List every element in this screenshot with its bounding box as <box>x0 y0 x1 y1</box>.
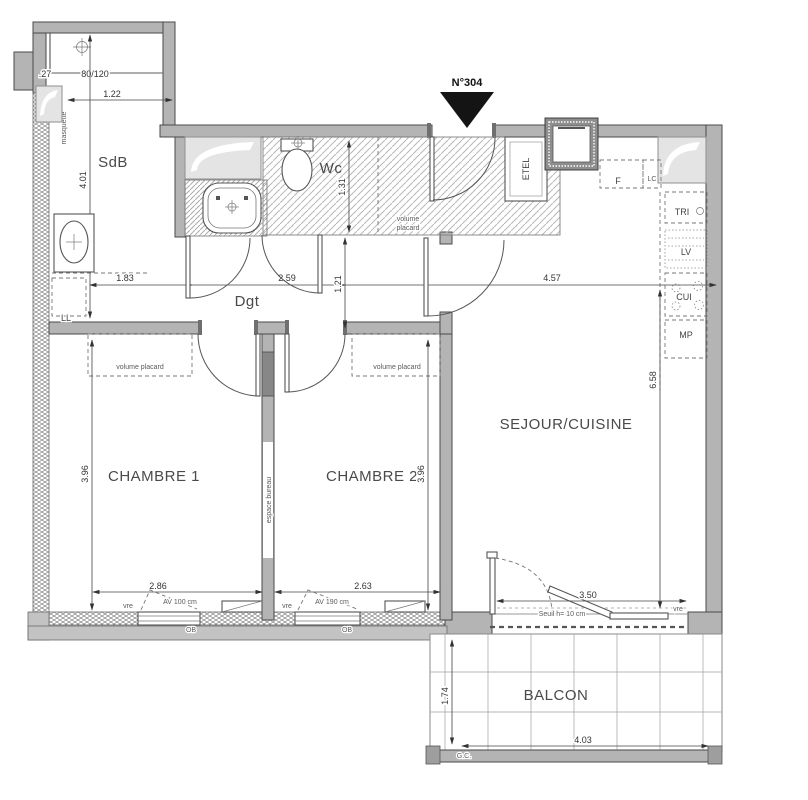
wall-right <box>706 125 722 635</box>
corridor: 1.83 2.59 4.57 1.21 Dgt <box>90 235 716 328</box>
wall-sdb-wc <box>175 137 185 237</box>
burner-icon <box>672 302 680 310</box>
dim-chambre2-depth: 3.96 <box>416 465 426 483</box>
dim-chambre1-width: 2.86 <box>149 581 167 591</box>
label-seuil: Seuil h= 10 cm <box>539 611 586 618</box>
unit-number: N°304 <box>452 77 484 89</box>
dim-annex-window: 80/120 <box>81 69 109 79</box>
balcony: BALCON 1.74 4.03 G.C. <box>426 634 722 764</box>
wc-door-leaf <box>318 235 322 293</box>
dim-annex-width: 1.22 <box>103 89 121 99</box>
dim-chambre2-width: 2.63 <box>354 581 372 591</box>
label-cui: CUI <box>676 292 692 302</box>
dim-sdb-depth: 4.01 <box>78 171 88 189</box>
tri-circle-icon <box>697 208 704 215</box>
bathtub <box>203 183 261 233</box>
dim-chambre1-depth: 3.96 <box>80 465 90 483</box>
room-chambre1: volume placard CHAMBRE 1 3.96 2.86 <box>80 334 262 610</box>
bay-door-leaf <box>490 556 495 614</box>
label-mp: MP <box>679 330 693 340</box>
room-label-sdb: SdB <box>98 154 128 171</box>
dim-corridor-1: 1.83 <box>116 273 134 283</box>
label-ob-ch2: OB <box>342 627 352 634</box>
room-label-balcon: BALCON <box>524 687 589 704</box>
entrance-arrow-icon <box>440 92 494 128</box>
label-etel: ETEL <box>521 158 531 181</box>
room-label-chambre2: CHAMBRE 2 <box>326 468 418 485</box>
floor-plan: .27 80/120 1.22 masquette SdB 4.01 LL <box>0 0 808 800</box>
dim-balcon-width: 4.03 <box>574 735 592 745</box>
duct-box <box>545 118 598 170</box>
label-volume-placard-ch1: volume placard <box>116 364 164 371</box>
label-vre-ch1: vre <box>123 603 133 610</box>
dim-wc-depth: 1.31 <box>337 178 347 196</box>
label-volume-placard-ch2: volume placard <box>373 364 421 371</box>
chambre1-door-leaf <box>256 334 260 396</box>
room-label-wc: Wc <box>320 160 343 177</box>
walls <box>14 22 722 640</box>
burner-icon <box>695 301 704 310</box>
sejour-door-swing <box>428 240 504 316</box>
dim-corridor-4: 4.57 <box>543 273 561 283</box>
label-ll: LL <box>61 313 71 323</box>
label-lv: LV <box>681 247 691 257</box>
wc-door-swing <box>262 235 320 293</box>
entry-door-leaf <box>430 137 434 201</box>
label-av-ch2: AV 190 cm <box>315 599 349 606</box>
label-lc: LC <box>648 176 657 183</box>
sejour-door-leaf <box>424 238 428 316</box>
dim-annex-wall: .27 <box>39 69 52 79</box>
sdb-door-leaf <box>186 236 190 298</box>
label-placard: placard <box>397 225 420 232</box>
room-label-chambre1: CHAMBRE 1 <box>108 468 200 485</box>
insulated-wall-left <box>33 93 49 620</box>
chambre2-door-leaf <box>285 334 289 392</box>
balcony-parapet <box>436 750 710 762</box>
dim-corridor-3: 1.21 <box>333 275 343 293</box>
dim-kitchen-depth: 6.58 <box>648 371 658 389</box>
bay-fixed-panel <box>610 613 668 619</box>
washbasin <box>54 214 94 272</box>
label-f: F <box>615 176 621 186</box>
wall-chambre2-sejour <box>440 334 452 620</box>
bay-door: 3.50 Seuil h= 10 cm vre <box>487 552 688 627</box>
kitchen: F LC TRI LV CUI MP 6.58 <box>600 137 707 608</box>
sdb-door-swing <box>190 238 250 298</box>
room-label-dgt: Dgt <box>235 293 260 310</box>
room-chambre2: volume placard CHAMBRE 2 3.96 2.63 espac… <box>263 334 440 610</box>
label-tri: TRI <box>675 207 690 217</box>
chambre1-door-swing <box>198 334 258 396</box>
label-ob-ch1: OB <box>186 627 196 634</box>
label-espace-bureau: espace bureau <box>266 477 273 523</box>
label-av-ch1: AV 100 cm <box>163 599 197 606</box>
label-vre-ch2: vre <box>282 603 292 610</box>
room-label-sejour: SEJOUR/CUISINE <box>500 416 633 433</box>
fridge-box <box>600 160 643 188</box>
burner-icon <box>694 282 703 291</box>
dim-balcon-depth: 1.74 <box>440 687 450 705</box>
dim-bay-width: 3.50 <box>579 590 597 600</box>
label-volume: volume <box>397 216 420 223</box>
label-gc: G.C. <box>457 753 471 760</box>
chambre2-door-swing <box>287 334 345 392</box>
toilet <box>281 136 313 191</box>
label-vre-bay: vre <box>673 606 683 613</box>
washer-ll <box>52 278 86 316</box>
